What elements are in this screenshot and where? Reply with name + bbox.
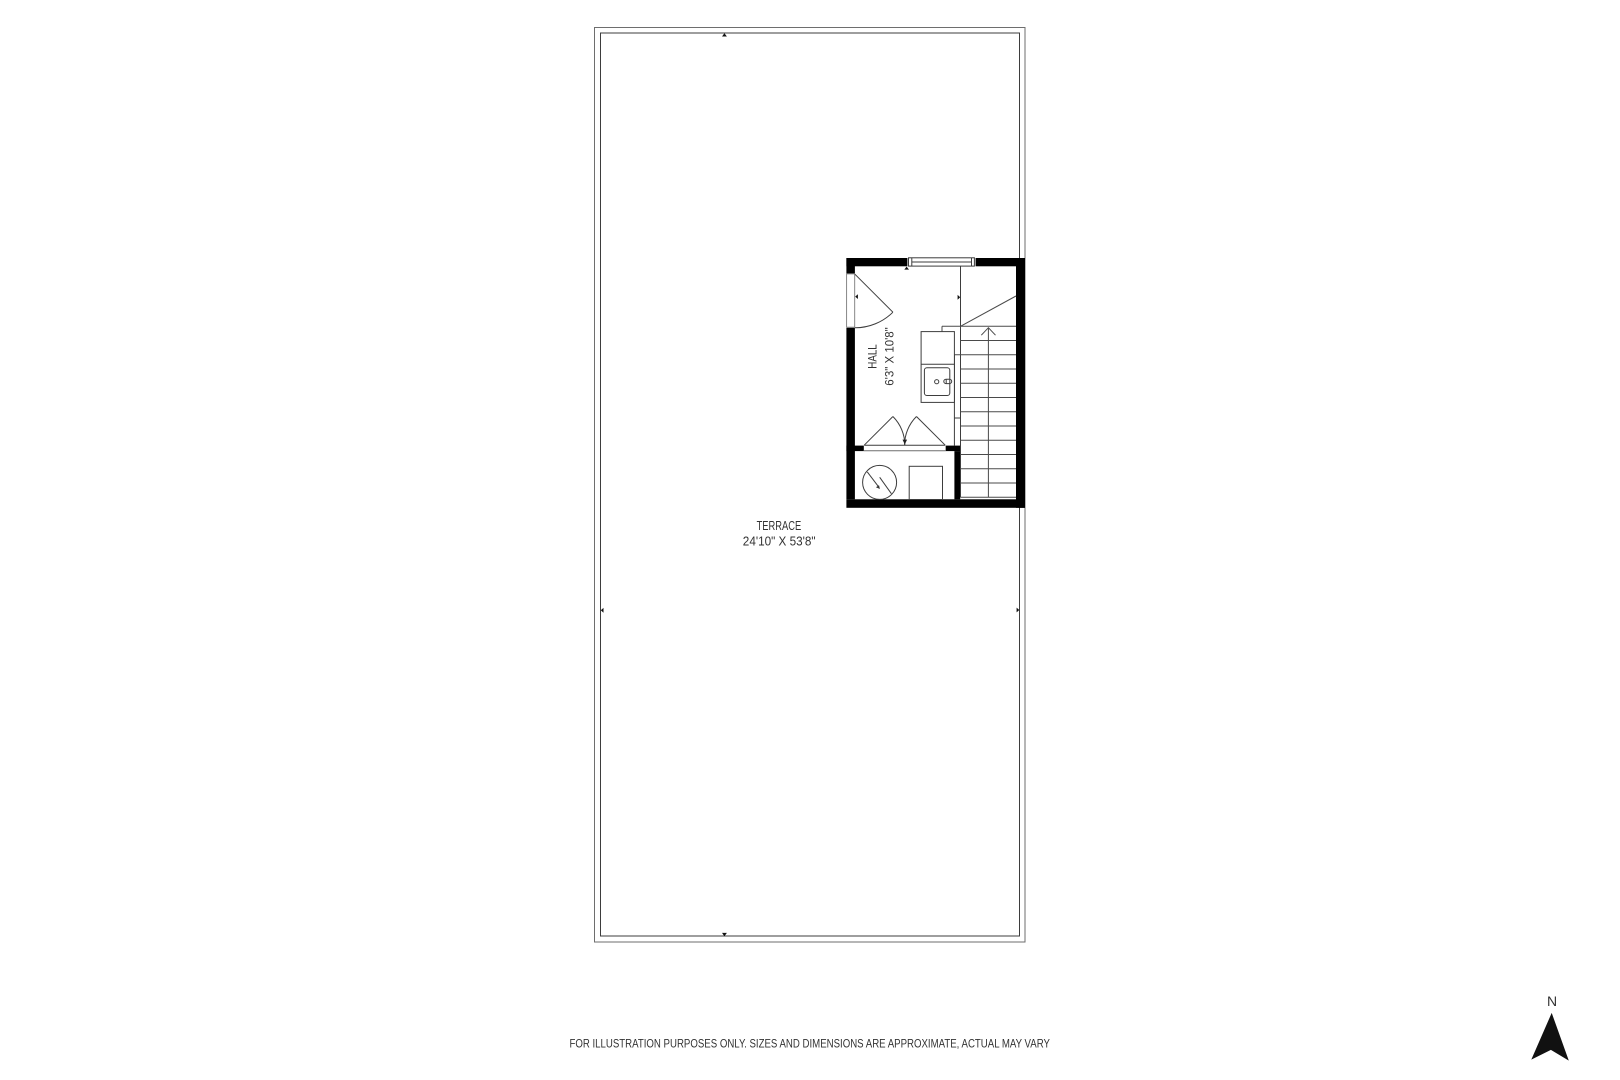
- svg-text:TERRACE: TERRACE: [757, 518, 802, 533]
- svg-text:6'3" X 10'8": 6'3" X 10'8": [882, 327, 896, 386]
- svg-text:N: N: [1547, 993, 1557, 1009]
- svg-text:24'10" X 53'8": 24'10" X 53'8": [743, 535, 816, 549]
- svg-text:FOR ILLUSTRATION PURPOSES ONLY: FOR ILLUSTRATION PURPOSES ONLY. SIZES AN…: [569, 1037, 1050, 1051]
- svg-text:HALL: HALL: [865, 344, 879, 369]
